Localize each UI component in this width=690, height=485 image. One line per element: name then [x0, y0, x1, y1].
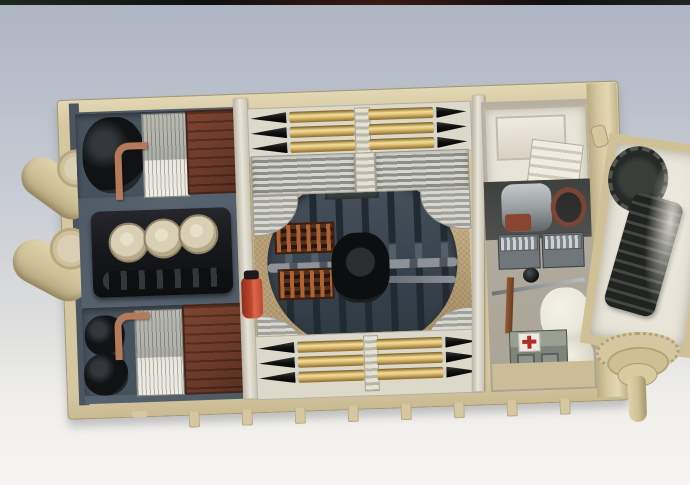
- radiator-bay-bottom: [82, 303, 243, 396]
- red-cross-icon: [518, 332, 541, 352]
- shell-case: [297, 340, 363, 353]
- radio-grill: [500, 235, 539, 251]
- hull-tab: [400, 404, 412, 420]
- radio-set: [498, 233, 541, 269]
- shell-case: [290, 140, 355, 153]
- steering-wheel: [550, 187, 587, 228]
- shell-case: [290, 125, 355, 138]
- hull-nub: [132, 411, 148, 418]
- projectile-tip: [258, 342, 294, 354]
- rack-center-post: [355, 152, 376, 193]
- engine-block: [91, 207, 234, 298]
- hull-tab: [453, 402, 465, 418]
- radio-grill: [544, 234, 583, 250]
- shell-band: [442, 338, 445, 347]
- shell-case: [376, 337, 442, 350]
- crew-compartment: [481, 99, 597, 393]
- projectile-tip: [437, 136, 467, 148]
- coolant-pipe: [114, 142, 149, 200]
- projectile-tip: [436, 106, 466, 118]
- engine-bay: [75, 107, 243, 404]
- radiator-box: [185, 109, 240, 195]
- fire-extinguisher: [241, 276, 263, 319]
- shell-rack-slats: [251, 153, 356, 197]
- shell-rack-slats: [375, 149, 470, 192]
- shell-case: [369, 137, 434, 150]
- control-knob: [523, 267, 540, 283]
- shell-band: [434, 123, 437, 132]
- shell-band: [434, 138, 437, 147]
- hull-tab: [506, 400, 518, 416]
- hull-tab: [347, 406, 359, 422]
- shell-band: [443, 368, 446, 377]
- shell-band: [433, 108, 436, 117]
- hull-tab: [189, 411, 201, 427]
- axle-peg: [628, 376, 648, 423]
- shell-case: [377, 367, 443, 380]
- projectile-tip: [251, 127, 287, 139]
- machinery-band: [484, 179, 592, 241]
- shell-case: [298, 370, 364, 383]
- hull-tab: [559, 398, 571, 414]
- final-drive-housing: [593, 331, 680, 430]
- projectile-tip: [250, 112, 286, 124]
- projectile-tip: [259, 357, 295, 369]
- crew-floor: [492, 360, 595, 390]
- shell-case: [298, 355, 364, 368]
- shell-band: [443, 353, 446, 362]
- fighting-compartment: [247, 101, 483, 402]
- wooden-rod: [505, 277, 514, 333]
- radiator-box: [182, 303, 247, 395]
- tank-hull-model: [0, 0, 690, 485]
- projectile-tip: [437, 121, 467, 133]
- ammo-bin: [278, 268, 335, 301]
- ring-gearbox: [330, 232, 390, 304]
- radiator-bay-top: [75, 109, 236, 198]
- hull-tab: [294, 408, 306, 424]
- air-cleaner: [178, 214, 219, 255]
- shell-case: [368, 107, 433, 120]
- hull-tab: [242, 409, 254, 425]
- shell-case: [377, 352, 443, 365]
- model-photo: [0, 0, 690, 485]
- coolant-pipe: [114, 312, 151, 360]
- ammo-rack-bottom: [255, 328, 481, 400]
- exhaust-manifold: [103, 267, 226, 290]
- shell-case: [369, 122, 434, 135]
- projectile-tip: [259, 372, 295, 384]
- radio-set: [542, 232, 585, 268]
- projectile-tip: [251, 142, 287, 154]
- transmission-detail: [505, 214, 532, 232]
- shell-case: [289, 110, 354, 123]
